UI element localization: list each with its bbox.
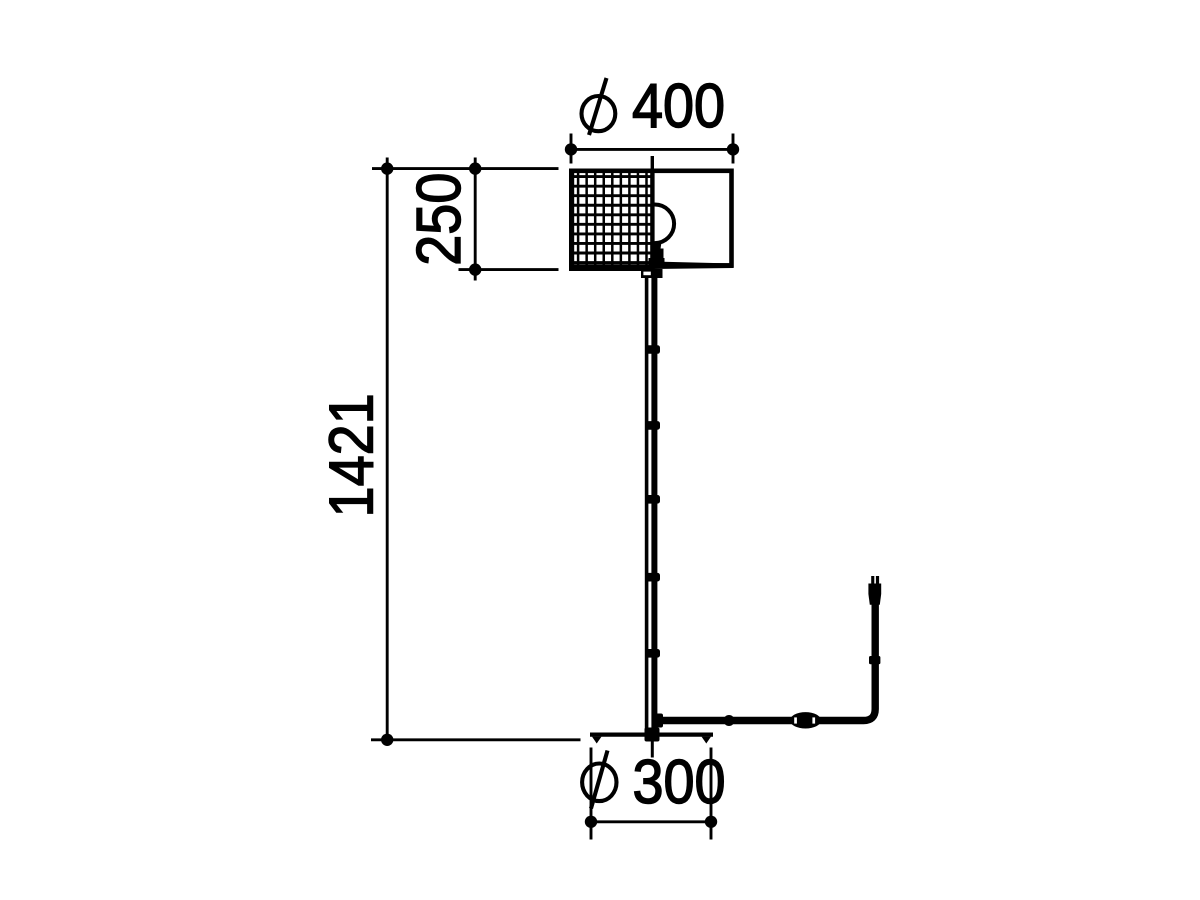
svg-text:400: 400 (632, 72, 725, 140)
svg-text:1421: 1421 (318, 393, 386, 517)
svg-text:300: 300 (632, 748, 725, 816)
svg-text:250: 250 (405, 173, 473, 266)
